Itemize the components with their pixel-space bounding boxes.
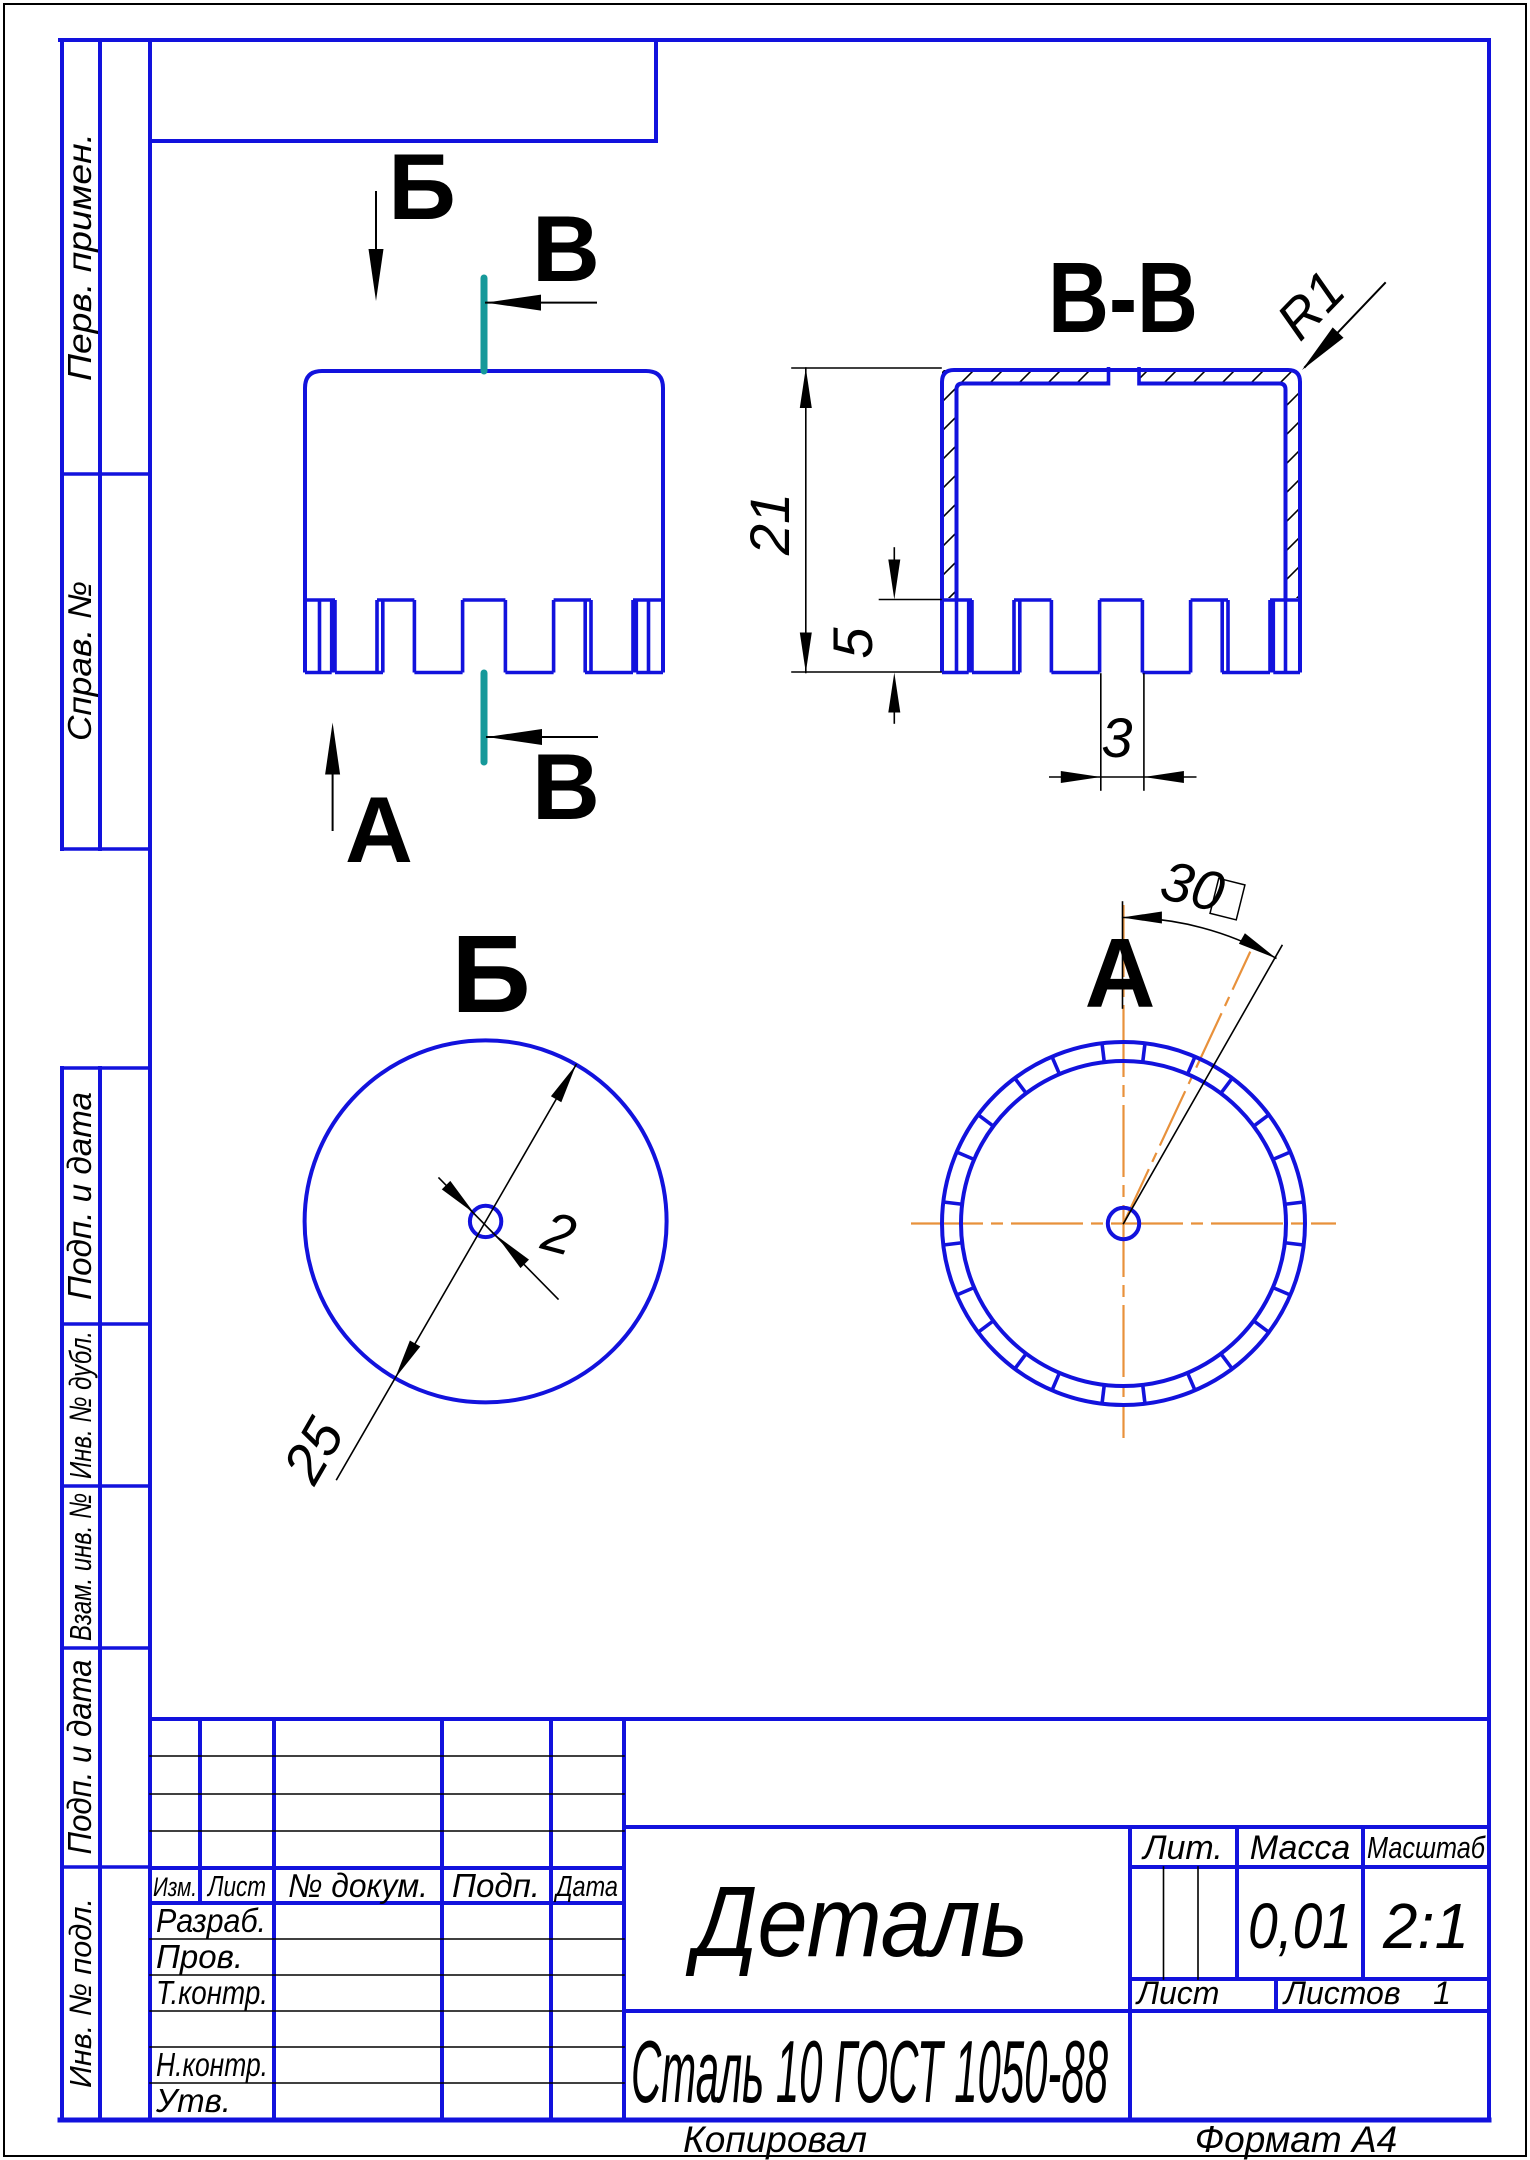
svg-text:Формат А4: Формат А4 bbox=[1195, 2119, 1397, 2160]
svg-text:Пров.: Пров. bbox=[156, 1938, 243, 1975]
svg-text:Перв. примен.: Перв. примен. bbox=[61, 133, 98, 381]
svg-text:Б: Б bbox=[388, 134, 456, 239]
svg-text:Листов: Листов bbox=[1282, 1975, 1401, 2011]
svg-text:Лит.: Лит. bbox=[1141, 1829, 1223, 1867]
svg-text:2:1: 2:1 bbox=[1382, 1890, 1469, 1962]
svg-text:Справ. №: Справ. № bbox=[61, 581, 98, 741]
svg-text:1: 1 bbox=[1433, 1975, 1451, 2011]
svg-text:3: 3 bbox=[1101, 706, 1132, 769]
svg-text:Масса: Масса bbox=[1250, 1829, 1351, 1867]
svg-text:0,01: 0,01 bbox=[1248, 1890, 1352, 1962]
svg-text:21: 21 bbox=[738, 493, 801, 556]
svg-text:Изм.: Изм. bbox=[153, 1872, 197, 1902]
svg-text:5: 5 bbox=[821, 627, 884, 659]
svg-text:В-В: В-В bbox=[1048, 242, 1198, 354]
svg-text:Подп. и дата: Подп. и дата bbox=[61, 1660, 98, 1855]
svg-text:№ докум.: № докум. bbox=[288, 1867, 428, 1904]
svg-text:Деталь: Деталь bbox=[685, 1866, 1028, 1978]
svg-text:В: В bbox=[532, 196, 600, 301]
svg-text:А: А bbox=[1085, 918, 1156, 1028]
svg-text:В: В bbox=[532, 734, 600, 839]
svg-text:Подп. и дата: Подп. и дата bbox=[61, 1092, 98, 1300]
svg-text:Инв. № подл.: Инв. № подл. bbox=[63, 1898, 98, 2088]
svg-text:Взам. инв. №: Взам. инв. № bbox=[63, 1493, 98, 1641]
svg-text:Масштаб: Масштаб bbox=[1367, 1830, 1486, 1865]
svg-text:Сталь 10 ГОСТ 1050-88: Сталь 10 ГОСТ 1050-88 bbox=[631, 2022, 1108, 2121]
svg-text:Разраб.: Разраб. bbox=[156, 1902, 266, 1939]
svg-text:Утв.: Утв. bbox=[155, 2082, 231, 2119]
svg-text:Лист: Лист bbox=[1135, 1975, 1219, 2011]
svg-text:Лист: Лист bbox=[206, 1871, 266, 1903]
svg-text:Т.контр.: Т.контр. bbox=[156, 1974, 268, 2011]
svg-text:Инв. № дубл.: Инв. № дубл. bbox=[63, 1331, 98, 1479]
svg-text:Дата: Дата bbox=[554, 1871, 618, 1903]
svg-text:А: А bbox=[345, 777, 413, 882]
svg-text:Копировал: Копировал bbox=[683, 2119, 867, 2160]
svg-text:Подп.: Подп. bbox=[452, 1867, 540, 1904]
svg-text:Н.контр.: Н.контр. bbox=[156, 2046, 268, 2083]
svg-text:Б: Б bbox=[451, 913, 530, 1036]
